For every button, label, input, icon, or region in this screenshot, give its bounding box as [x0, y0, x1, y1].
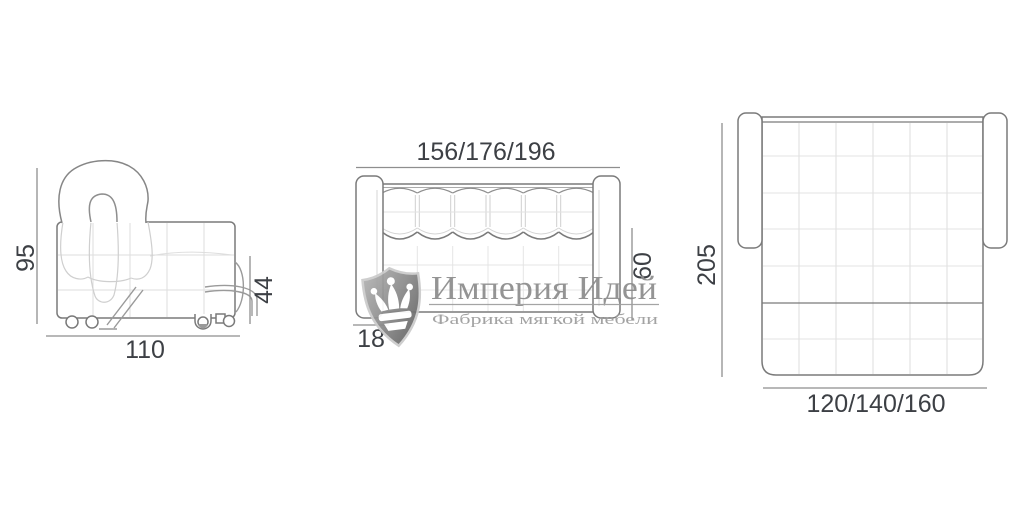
top-view: 205 120/140/160 [693, 113, 1007, 418]
side-sofa-body [57, 222, 235, 318]
front-backrest [376, 184, 600, 239]
side-view: 95 110 44 [12, 161, 278, 364]
backrest-bottom-scallops [382, 232, 594, 239]
side-seat-height-label: 44 [250, 276, 278, 304]
front-width-label: 156/176/196 [416, 138, 555, 166]
top-left-armrest [738, 113, 762, 248]
top-width-label: 120/140/160 [806, 390, 945, 418]
side-height-label: 95 [12, 244, 40, 272]
side-leg-icon [86, 316, 98, 328]
top-right-armrest [983, 113, 1007, 248]
furniture-dimensions-diagram: 95 110 44 [0, 0, 1024, 512]
side-leg-icon [66, 316, 78, 328]
side-depth-label: 110 [125, 336, 165, 364]
diagram-svg: 95 110 44 [0, 0, 1024, 512]
backrest-tuft-seams [378, 195, 598, 227]
backrest-top-scallops [382, 188, 594, 193]
top-depth-label: 205 [693, 244, 721, 286]
watermark-tagline: Фабрика мягкой мебели [432, 312, 658, 328]
side-leg-icon [224, 316, 235, 327]
watermark-brand: Империя Идей [431, 270, 657, 307]
backrest-bottom-echo [382, 228, 594, 234]
